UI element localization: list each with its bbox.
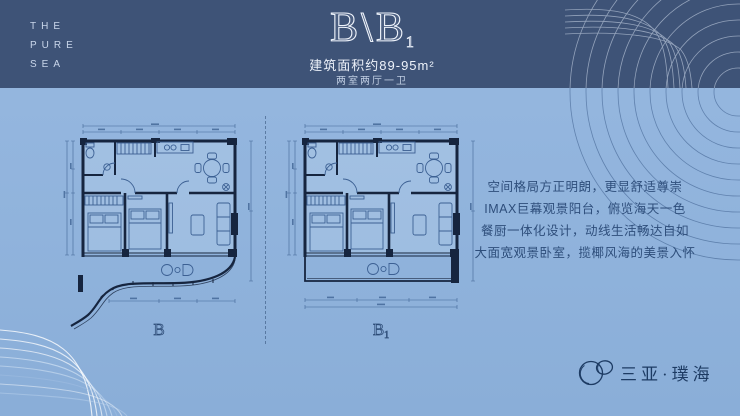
floor-plan-b (63, 123, 255, 333)
layout-text: 两室两厅一卫 (252, 72, 492, 87)
poster: THE PURE SEA B\B1 建筑面积约89-95m² 两室两厅一卫 (0, 0, 740, 416)
plan-divider-dashed-line (265, 116, 266, 344)
description-line-3: 餐厨一体化设计，动线生活畅达自如 (470, 220, 700, 242)
plan-label-b1: B1 (351, 320, 411, 340)
description-block: 空间格局方正明朗，更显舒适尊崇 IMAX巨幕观景阳台，俯览海天一色 餐厨一体化设… (470, 176, 700, 264)
footer-logo: 三亚·璞海 (576, 352, 726, 392)
brand-line-1: THE (30, 17, 78, 36)
brand-wordmark: THE PURE SEA (30, 17, 78, 74)
description-line-2: IMAX巨幕观景阳台，俯览海天一色 (470, 198, 700, 220)
unit-title-b1-subscript: 1 (406, 34, 415, 51)
logo-text: 三亚·璞海 (620, 360, 714, 385)
description-line-4: 大面宽观景卧室，揽椰风海的美景入怀 (470, 242, 700, 264)
unit-title-b: B (330, 5, 359, 51)
brand-line-2: PURE (30, 36, 78, 55)
contour-lines-bottom-left (0, 324, 150, 416)
logo-pearl-icon (576, 352, 616, 390)
unit-title-separator: \ (359, 5, 376, 51)
unit-title-b1: B (376, 5, 405, 51)
brand-line-3: SEA (30, 55, 78, 74)
unit-title: B\B1 (272, 4, 472, 61)
plan-label-b: B (129, 320, 189, 340)
floor-plan-b1 (285, 123, 477, 333)
description-line-1: 空间格局方正明朗，更显舒适尊崇 (470, 176, 700, 198)
